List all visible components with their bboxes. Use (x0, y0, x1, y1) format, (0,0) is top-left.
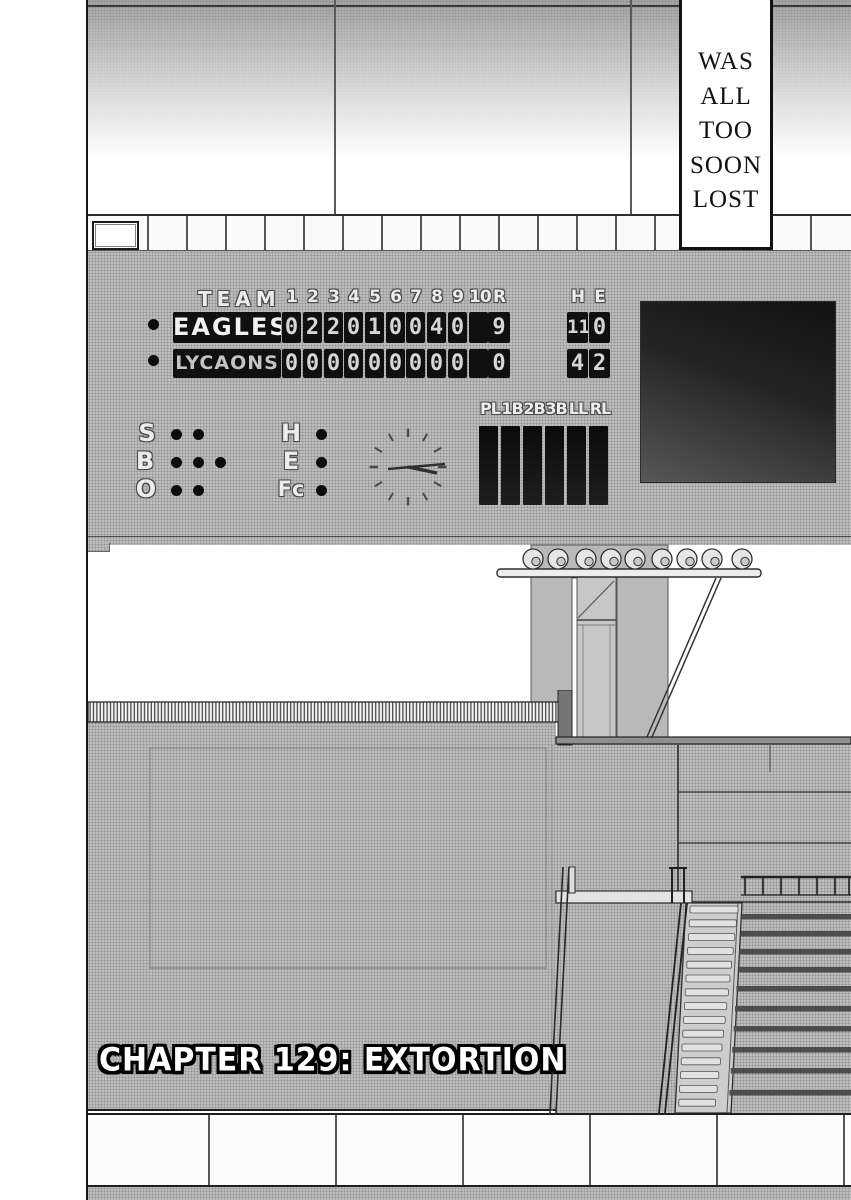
stadium-pole-left (334, 0, 336, 216)
indicator-lamp (316, 429, 327, 440)
stair-step (690, 906, 738, 913)
clock-tick (389, 434, 393, 441)
errors-cell-away: 0 (589, 312, 610, 343)
fence-post (225, 216, 227, 250)
stair-step (680, 1072, 718, 1079)
umpire-label: 1B (501, 399, 523, 418)
count-lamp (171, 429, 182, 440)
umpire-label: LL (567, 399, 589, 418)
inning-header: 8 (427, 287, 446, 307)
stadium-light-lens (557, 557, 565, 565)
wall-panel-outline (150, 748, 546, 968)
clock-tick (434, 448, 441, 452)
scoreboard-base-step (88, 543, 110, 552)
scoreboard-housing: TEAM R H E EAGLES LYCAONS 9 0 11 0 4 2 S… (88, 250, 851, 545)
umpire-lamp-panel (479, 426, 498, 505)
fence-post (381, 216, 383, 250)
stadium-light-lens (634, 557, 642, 565)
indicator-lamp (316, 485, 327, 496)
stair-step (684, 1003, 726, 1010)
fence-post (208, 1115, 210, 1185)
foreground-strip (88, 1187, 851, 1200)
team-column-header: TEAM (198, 287, 274, 311)
clock-hour-hand (408, 467, 437, 473)
inning-cell: 0 (386, 349, 405, 378)
bleacher-row (735, 1006, 851, 1012)
inning-header: 1 (282, 287, 301, 307)
truss-left-column (531, 577, 572, 705)
fence-post (459, 216, 461, 250)
fence-post (420, 216, 422, 250)
fence-post (303, 216, 305, 250)
fence-post (335, 1115, 337, 1185)
error-label: E (278, 447, 304, 475)
umpire-lamp-panel (545, 426, 564, 505)
hits-column-header: H (567, 287, 588, 307)
fence-post (615, 216, 617, 250)
count-lamp (215, 457, 226, 468)
runs-cell-home: 0 (488, 349, 510, 378)
inning-cell: 4 (427, 312, 446, 343)
inning-header: 5 (365, 287, 384, 307)
stair-step (684, 1016, 726, 1023)
stair-step (689, 920, 736, 927)
inning-cell: 2 (303, 312, 322, 343)
fence-sign-inner-frame (95, 224, 136, 247)
stair-step (679, 1099, 716, 1106)
manga-page: TEAM R H E EAGLES LYCAONS 9 0 11 0 4 2 S… (0, 0, 851, 1200)
bleacher-row (734, 1026, 851, 1032)
field-wall-fence (88, 1113, 851, 1187)
count-lamp (193, 457, 204, 468)
inning-cell: 0 (386, 312, 405, 343)
bleacher-row (741, 931, 851, 937)
fence-post (589, 1115, 591, 1185)
umpire-label: 2B (523, 399, 545, 418)
stadium-light-lens (686, 557, 694, 565)
errors-column-header: E (589, 287, 610, 307)
inning-cell: 0 (324, 349, 343, 378)
fence-post (342, 216, 344, 250)
stadium-light-lens (610, 557, 618, 565)
stadium-light-lens (741, 557, 749, 565)
fence-post (462, 1115, 464, 1185)
runs-cell-away: 9 (488, 312, 510, 343)
narration-box: WAS ALL TOO SOON LOST (679, 0, 773, 250)
stair-step (688, 947, 734, 954)
inning-header: 10 (469, 287, 488, 307)
count-lamp (171, 457, 182, 468)
umpire-label: 3B (545, 399, 567, 418)
stadium-light-lens (711, 557, 719, 565)
stair-step (687, 961, 732, 968)
clock-tick (375, 448, 382, 452)
clock-tick (423, 493, 427, 500)
fence-post (186, 216, 188, 250)
inning-cell: 0 (406, 349, 425, 378)
hits-cell-away: 11 (567, 312, 588, 343)
inning-header: 2 (303, 287, 322, 307)
inning-cell: 0 (303, 349, 322, 378)
fence-post (264, 216, 266, 250)
stadium-pole-right (630, 0, 632, 216)
fence-post (498, 216, 500, 250)
hits-cell-home: 4 (567, 349, 588, 378)
stair-step (685, 989, 728, 996)
stair-step (686, 975, 730, 982)
bleacher-row (742, 914, 851, 920)
chapter-title: CHAPTER 129: EXTORTION (99, 1042, 566, 1079)
clock-tick (375, 482, 382, 486)
bleacher-row (736, 986, 851, 992)
inning-cell: 0 (448, 349, 467, 378)
inning-header: 9 (448, 287, 467, 307)
inning-cell: 0 (427, 349, 446, 378)
narration-text: WAS ALL TOO SOON LOST (690, 48, 762, 213)
stair-step (680, 1085, 718, 1092)
umpire-lamp-panel (567, 426, 586, 505)
fence-post (147, 216, 149, 250)
bleacher-row (738, 967, 851, 973)
errors-cell-home: 2 (589, 349, 610, 378)
team-name-home: LYCAONS (173, 349, 281, 378)
inning-header: 7 (406, 287, 425, 307)
clock-tick (423, 434, 427, 441)
fence-post (843, 1115, 845, 1185)
inning-cell: 0 (448, 312, 467, 343)
terrace-top-edge (556, 737, 851, 744)
floodlight-bar (497, 569, 761, 577)
handrail-post (569, 867, 575, 893)
out-label: O (133, 475, 159, 503)
team-name-away: EAGLES (173, 312, 281, 343)
fence-post (810, 216, 812, 250)
runs-column-header: R (488, 287, 510, 307)
fence-post (537, 216, 539, 250)
fence-sign (92, 221, 139, 250)
stair-step (683, 1030, 724, 1037)
batting-indicator-lamp (148, 355, 159, 366)
stadium-light-lens (661, 557, 669, 565)
inning-cell: 0 (344, 349, 363, 378)
umpire-label: RL (589, 399, 611, 418)
page-border-line (86, 0, 88, 1200)
inning-header: 4 (344, 287, 363, 307)
stadium-light-lens (585, 557, 593, 565)
ball-label: B (132, 447, 158, 475)
inning-header: 3 (324, 287, 343, 307)
stair-step (681, 1058, 720, 1065)
umpire-label: PL (479, 399, 501, 418)
inning-cell (469, 349, 488, 378)
stair-step (688, 934, 734, 941)
inning-cell: 0 (406, 312, 425, 343)
count-lamp (193, 429, 204, 440)
wall-top-railing (88, 702, 562, 722)
fence-post (716, 1115, 718, 1185)
inning-cell: 0 (282, 312, 301, 343)
indicator-lamp (316, 457, 327, 468)
scoreboard-clock (364, 423, 452, 511)
inning-cell: 0 (365, 349, 384, 378)
stadium-light-lens (532, 557, 540, 565)
inning-cell: 2 (324, 312, 343, 343)
batting-indicator-lamp (148, 319, 159, 330)
inning-cell: 0 (282, 349, 301, 378)
stair-step (682, 1044, 722, 1051)
bleacher-row (739, 949, 851, 955)
count-lamp (171, 485, 182, 496)
fielders-choice-label: Fc (276, 477, 306, 501)
hit-label: H (278, 419, 304, 447)
inning-header: 6 (386, 287, 405, 307)
bleacher-row (729, 1090, 851, 1096)
scoreboard-base-rule (88, 536, 851, 537)
bleacher-row (732, 1047, 851, 1053)
strike-label: S (134, 419, 160, 447)
umpire-lamp-panel (589, 426, 608, 505)
bleacher-row (731, 1068, 851, 1074)
fence-post (576, 216, 578, 250)
umpire-lamp-panel (523, 426, 542, 505)
clock-tick (434, 482, 441, 486)
clock-tick (389, 493, 393, 500)
count-lamp (193, 485, 204, 496)
fence-post (654, 216, 656, 250)
umpire-lamp-panel (501, 426, 520, 505)
inning-cell: 0 (344, 312, 363, 343)
video-display-panel (640, 301, 836, 483)
inning-cell: 1 (365, 312, 384, 343)
inning-cell (469, 312, 488, 343)
